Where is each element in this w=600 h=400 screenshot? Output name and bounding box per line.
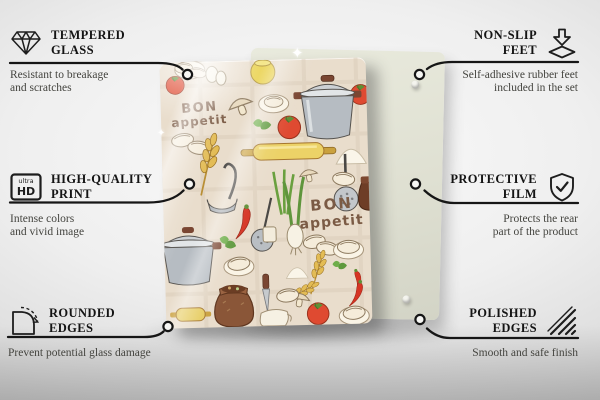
shield-check-icon	[546, 172, 578, 202]
callout-title: TEMPERED GLASS	[51, 28, 125, 58]
ultra-hd-icon: ultra HD	[10, 172, 42, 202]
callout-polished-edges: POLISHED EDGES Smooth and safe finish	[400, 304, 578, 360]
title-line: GLASS	[51, 43, 125, 58]
callout-caption: Intense colors and vivid image	[10, 213, 188, 239]
callout-tempered-glass: TEMPERED GLASS Resistant to breakage and…	[10, 26, 188, 95]
callout-caption: Protects the rear part of the product	[400, 213, 578, 239]
rounded-corner-arrow-icon	[8, 306, 40, 336]
diamond-icon	[10, 28, 42, 58]
print-text-bon-2: BON	[309, 194, 353, 215]
callout-title: ROUNDED EDGES	[49, 306, 115, 336]
print-text-appetit-1: appetit	[171, 112, 228, 130]
callout-title: POLISHED EDGES	[469, 306, 537, 336]
callout-caption: Self-adhesive rubber feet included in th…	[400, 69, 578, 95]
arrow-onto-pad-icon	[546, 28, 578, 58]
callout-title: HIGH-QUALITY PRINT	[51, 172, 152, 202]
bon-appetit-print: BON appetit	[160, 57, 373, 328]
callout-non-slip-feet: NON-SLIP FEET Self-adhesive rubber feet …	[400, 26, 578, 95]
callout-rounded-edges: ROUNDED EDGES Prevent potential glass da…	[8, 304, 186, 360]
callout-title: NON-SLIP FEET	[474, 28, 537, 58]
callout-high-quality-print: ultra HD HIGH-QUALITY PRINT Intense colo…	[10, 170, 188, 239]
callout-caption: Prevent potential glass damage	[8, 347, 186, 360]
green-onion	[273, 169, 294, 215]
hatched-edge-icon	[546, 306, 578, 336]
title-line: TEMPERED	[51, 28, 125, 43]
callout-title: PROTECTIVE FILM	[450, 172, 537, 202]
hd-icon-text-top: ultra	[18, 177, 33, 185]
hd-icon-text-bottom: HD	[17, 185, 35, 198]
callout-caption: Resistant to breakage and scratches	[10, 69, 188, 95]
knife	[262, 274, 270, 312]
callout-caption: Smooth and safe finish	[400, 347, 578, 360]
product-photo-scene: BON appetit	[0, 0, 600, 400]
rubber-foot	[402, 295, 410, 303]
glass-board-product: BON appetit	[160, 57, 373, 328]
pitcher	[260, 309, 292, 326]
callout-protective-film: PROTECTIVE FILM Protects the rear part o…	[400, 170, 578, 239]
